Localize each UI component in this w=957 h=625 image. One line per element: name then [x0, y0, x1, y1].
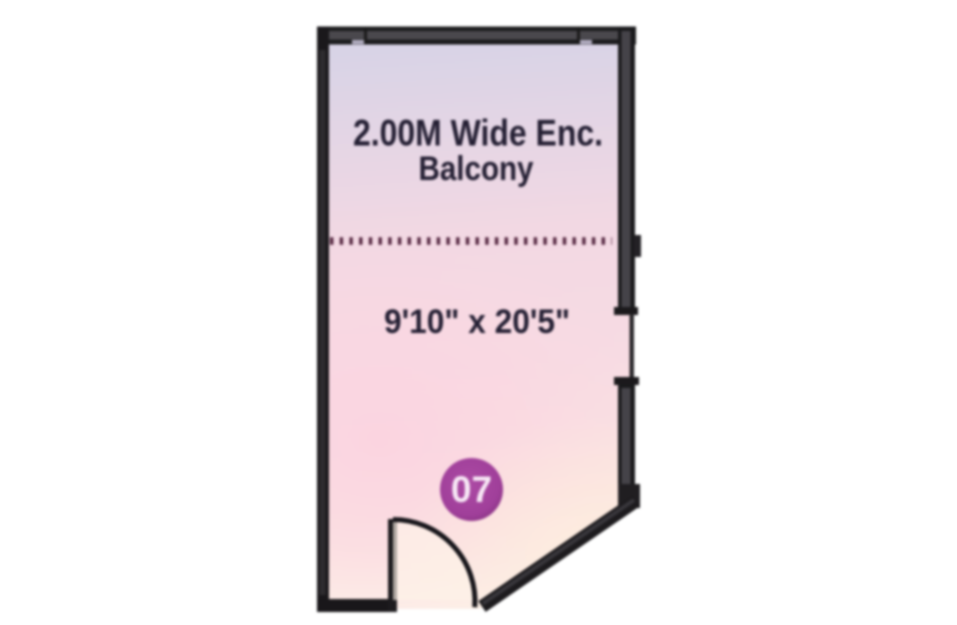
svg-text:07: 07: [451, 469, 492, 510]
svg-text:2.00M Wide Enc.: 2.00M Wide Enc.: [353, 113, 603, 154]
svg-text:9'10" x 20'5": 9'10" x 20'5": [384, 303, 570, 341]
svg-text:Balcony: Balcony: [419, 150, 534, 188]
